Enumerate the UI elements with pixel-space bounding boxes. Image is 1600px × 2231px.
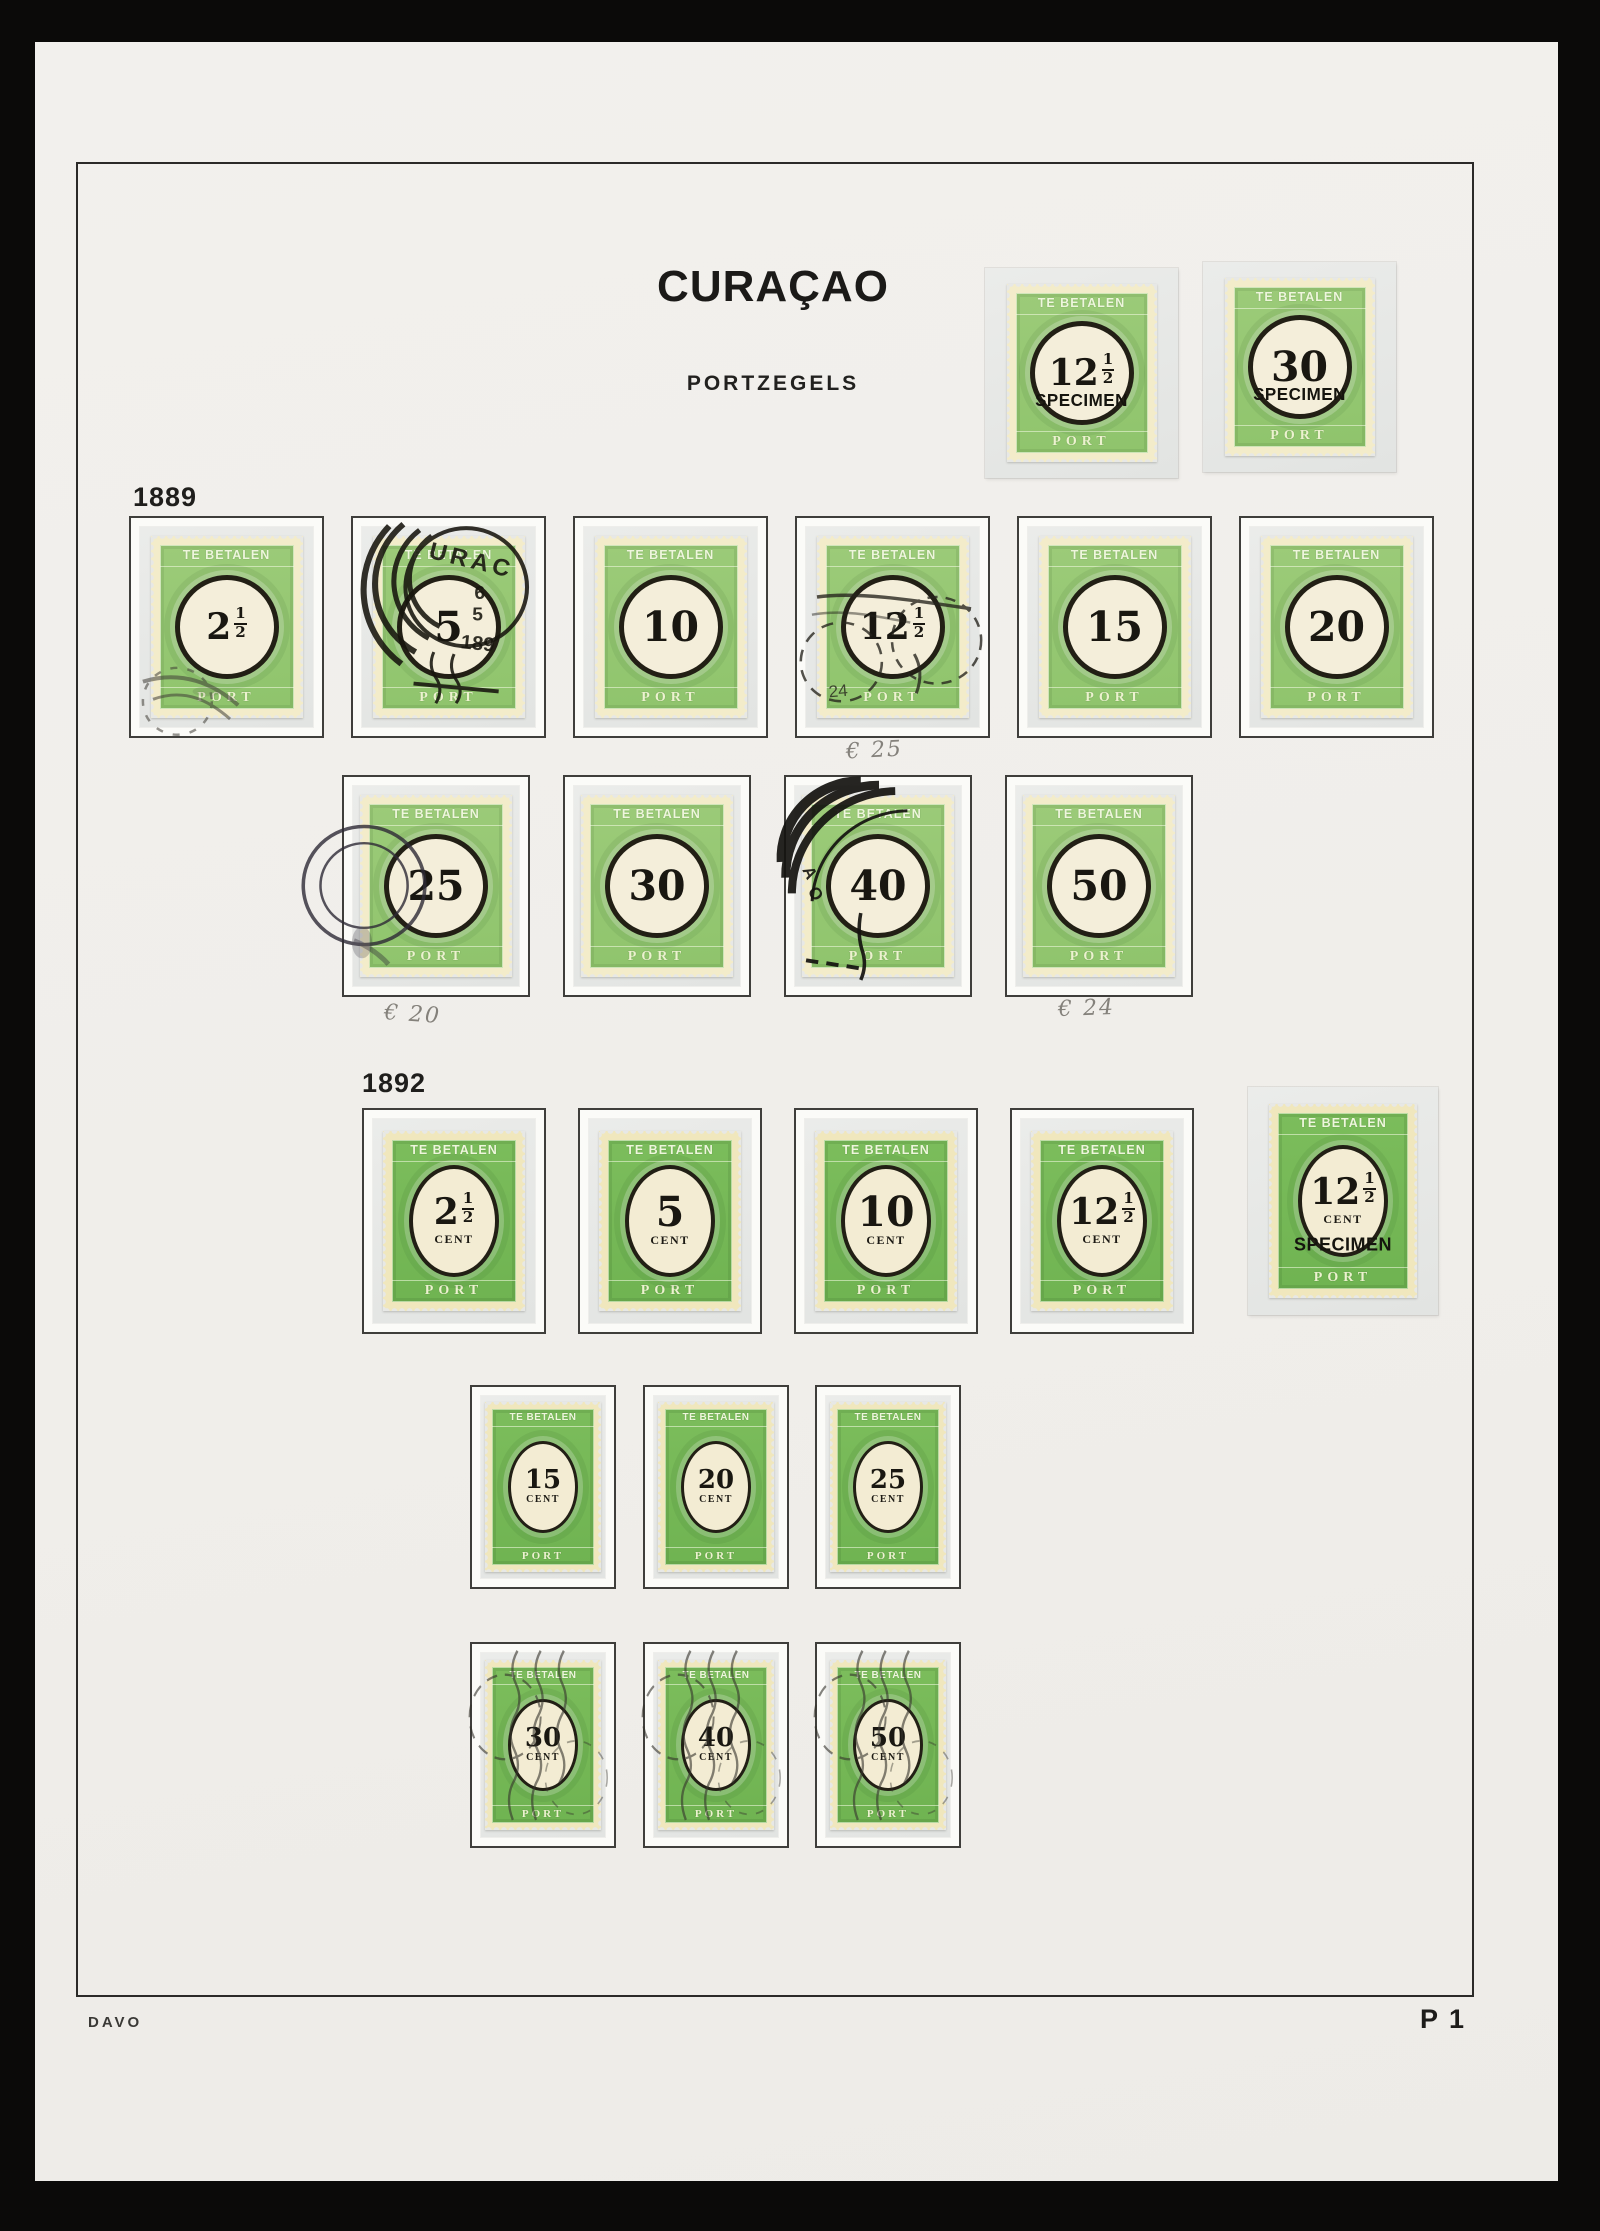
stamp-center-panel: 50CENT	[837, 1685, 939, 1805]
stamp-frame: TE BETALEN5CENTPORT	[608, 1140, 732, 1302]
stamp-30-1892: TE BETALEN30CENTPORT	[485, 1660, 601, 1830]
stamp-value: 40	[698, 1727, 734, 1750]
perforation-edge	[599, 1305, 741, 1311]
perforation-edge	[1007, 284, 1013, 462]
stamp-port-text: PORT	[492, 1805, 594, 1823]
stamp-port-text: PORT	[837, 1805, 939, 1823]
stamp-value-disc: 15CENT	[508, 1441, 578, 1533]
perforation-edge	[830, 1402, 836, 1572]
perforation-edge	[658, 1660, 664, 1830]
perforation-edge	[151, 536, 157, 718]
stamp-5-1892: TE BETALEN5CENTPORT	[599, 1131, 741, 1311]
stamp-top-text: TE BETALEN	[826, 545, 960, 567]
perforation-edge	[830, 1660, 836, 1830]
stamp-value-disc: 20CENT	[681, 1441, 751, 1533]
perforation-edge	[383, 1131, 389, 1311]
perforation-edge	[1269, 1104, 1417, 1110]
stamp-center-panel: 40	[811, 826, 945, 946]
perforation-edge	[581, 795, 733, 801]
stamp-25-1892: TE BETALEN25CENTPORT	[830, 1402, 946, 1572]
stamp-frame: TE BETALEN212CENTPORT	[392, 1140, 516, 1302]
pencil-price-note: € 25	[845, 737, 903, 765]
stamp-box: TE BETALEN1212PORT24	[795, 516, 990, 738]
perforation-edge	[1031, 1305, 1173, 1311]
perforation-edge	[360, 795, 366, 977]
stamp-unit-label: CENT	[699, 1752, 733, 1763]
stamp-frame: TE BETALEN50CENTPORT	[837, 1667, 939, 1823]
stamp-value-disc: 50	[1047, 834, 1151, 938]
perforation-edge	[727, 795, 733, 977]
stamp-value: 40	[849, 868, 906, 905]
stamp-unit-label: CENT	[526, 1494, 560, 1505]
stamp-frame: TE BETALEN40CENTPORT	[665, 1667, 767, 1823]
stamp-top-text: TE BETALEN	[665, 1667, 767, 1685]
perforation-edge	[817, 536, 969, 542]
perforation-edge	[815, 1305, 957, 1311]
stamp-top-text: TE BETALEN	[824, 1140, 948, 1162]
stamp-top-text: TE BETALEN	[1032, 804, 1166, 826]
perforation-edge	[1407, 536, 1413, 718]
stamp-top-text: TE BETALEN	[1016, 293, 1148, 315]
stamp-port-text: PORT	[1040, 1280, 1164, 1302]
stamp-40-1889: TE BETALEN40PORTAO	[802, 795, 954, 977]
perforation-edge	[830, 1566, 946, 1572]
stamp-15-1889: TE BETALEN15PORT	[1039, 536, 1191, 718]
perforation-edge	[485, 1566, 601, 1572]
stamp-value: 30	[1271, 349, 1328, 386]
pencil-price-note: € 20	[383, 1000, 442, 1029]
stamp-10-1889: TE BETALEN10PORT	[595, 536, 747, 718]
perforation-edge	[830, 1402, 946, 1408]
stamp-frame: TE BETALEN212PORT	[160, 545, 294, 709]
stamp-value-disc: 25CENT	[853, 1441, 923, 1533]
perforation-edge	[1261, 712, 1413, 718]
stamp-value-disc: 20	[1285, 575, 1389, 679]
stamp-value-disc: 1212CENT	[1057, 1165, 1147, 1277]
stamp-value: 5	[656, 1194, 685, 1231]
stamp-value-disc: 1212	[841, 575, 945, 679]
perforation-edge	[506, 795, 512, 977]
stamp-value-disc: 212CENT	[409, 1165, 499, 1277]
stamp-top-text: TE BETALEN	[604, 545, 738, 567]
stamp-center-panel: 15	[1048, 567, 1182, 687]
stamp-box: TE BETALEN5CENTPORT	[578, 1108, 762, 1334]
stamp-port-text: PORT	[1016, 431, 1148, 453]
perforation-edge	[1185, 536, 1191, 718]
stamp-port-text: PORT	[590, 946, 724, 968]
stamp-top-text: TE BETALEN	[590, 804, 724, 826]
stamp-frame: TE BETALEN1212CENTPORT	[1040, 1140, 1164, 1302]
perforation-edge	[519, 1131, 525, 1311]
stamp-top-text: TE BETALEN	[837, 1667, 939, 1685]
stamp-center-panel: 40CENT	[665, 1685, 767, 1805]
perforation-edge	[1007, 284, 1157, 290]
stamp-center-panel: 1212CENT	[1040, 1162, 1164, 1280]
stamp-top-text: TE BETALEN	[1278, 1113, 1408, 1135]
stamp-port-text: PORT	[1032, 946, 1166, 968]
stamp-box: TE BETALEN15CENTPORT	[470, 1385, 616, 1589]
perforation-edge	[951, 1131, 957, 1311]
stamp-frame: TE BETALEN40PORT	[811, 804, 945, 968]
stamp-50-1892: TE BETALEN50CENTPORT	[830, 1660, 946, 1830]
perforation-edge	[1225, 278, 1375, 284]
stamp-center-panel: 212CENT	[392, 1162, 516, 1280]
perforation-edge	[581, 795, 587, 977]
perforation-edge	[595, 1660, 601, 1830]
stamp-top-text: TE BETALEN	[369, 804, 503, 826]
perforation-edge	[1007, 456, 1157, 462]
stamp-12-half-1889: TE BETALEN1212PORT24	[817, 536, 969, 718]
perforation-edge	[485, 1660, 601, 1666]
stamp-10-1892: TE BETALEN10CENTPORT	[815, 1131, 957, 1311]
perforation-edge	[151, 712, 303, 718]
perforation-edge	[940, 1660, 946, 1830]
stamp-center-panel: 212	[160, 567, 294, 687]
perforation-edge	[830, 1660, 946, 1666]
stamp-value-disc: 30CENT	[508, 1699, 578, 1791]
perforation-edge	[1039, 536, 1045, 718]
perforation-edge	[817, 712, 969, 718]
stamp-30-specimen-1889: TE BETALEN30PORTSPECIMEN	[1225, 278, 1375, 456]
stamp-unit-label: CENT	[1082, 1232, 1121, 1247]
stamp-box: TE BETALEN10PORT	[573, 516, 768, 738]
stamp-value: 30	[628, 868, 685, 905]
perforation-edge	[373, 712, 525, 718]
perforation-edge	[373, 536, 379, 718]
stamp-top-text: TE BETALEN	[608, 1140, 732, 1162]
stamp-center-panel: 1212	[1016, 315, 1148, 431]
perforation-edge	[658, 1402, 664, 1572]
stamp-frame: TE BETALEN15PORT	[1048, 545, 1182, 709]
perforation-edge	[1225, 278, 1231, 456]
stamp-value: 5	[434, 609, 463, 646]
perforation-edge	[658, 1660, 774, 1666]
stamp-box: TE BETALEN40PORTAO	[784, 775, 972, 997]
perforation-edge	[1269, 1292, 1417, 1298]
stamp-unit-label: CENT	[866, 1233, 905, 1248]
stamp-center-panel: 30	[1234, 309, 1366, 425]
stamp-port-text: PORT	[1270, 687, 1404, 709]
stamp-20-1892: TE BETALEN20CENTPORT	[658, 1402, 774, 1572]
perforation-edge	[595, 1402, 601, 1572]
perforation-edge	[1369, 278, 1375, 456]
stamp-value-disc: 30	[605, 834, 709, 938]
stamp-value-disc: 5	[397, 575, 501, 679]
stamp-frame: TE BETALEN10CENTPORT	[824, 1140, 948, 1302]
stamp-value: 212	[206, 610, 247, 643]
perforation-edge	[485, 1824, 601, 1830]
stamp-20-1889: TE BETALEN20PORT	[1261, 536, 1413, 718]
stamp-value: 20	[1308, 609, 1365, 646]
stamp-port-text: PORT	[837, 1547, 939, 1565]
stamp-box: TE BETALEN1212CENTPORT	[1010, 1108, 1194, 1334]
stamp-value: 50	[1070, 868, 1127, 905]
stamp-value-disc: 40CENT	[681, 1699, 751, 1791]
perforation-edge	[817, 536, 823, 718]
stamp-port-text: PORT	[665, 1547, 767, 1565]
stamp-center-panel: 25CENT	[837, 1427, 939, 1547]
year-label-1889: 1889	[133, 482, 197, 513]
stamp-frame: TE BETALEN30PORT	[1234, 287, 1366, 447]
stamp-top-text: TE BETALEN	[1048, 545, 1182, 567]
stamp-center-panel: 30CENT	[492, 1685, 594, 1805]
stamp-box: TE BETALEN25PORT	[342, 775, 530, 997]
stamp-center-panel: 5	[382, 567, 516, 687]
stamp-box: TE BETALEN10CENTPORT	[794, 1108, 978, 1334]
perforation-edge	[658, 1824, 774, 1830]
stamp-value-disc: 15	[1063, 575, 1167, 679]
perforation-edge	[360, 971, 512, 977]
stamp-value: 25	[407, 868, 464, 905]
stamp-unit-label: CENT	[1323, 1212, 1362, 1227]
stamp-40-1892: TE BETALEN40CENTPORT	[658, 1660, 774, 1830]
perforation-edge	[830, 1824, 946, 1830]
stamp-port-text: PORT	[1048, 687, 1182, 709]
pencil-price-note: € 24	[1058, 995, 1116, 1022]
stamp-box: TE BETALEN212PORT	[129, 516, 324, 738]
specimen-overprint: SPECIMEN	[1221, 384, 1379, 405]
stamp-value: 50	[870, 1727, 906, 1750]
stamp-top-text: TE BETALEN	[1270, 545, 1404, 567]
perforation-edge	[599, 1131, 605, 1311]
perforation-edge	[1031, 1131, 1037, 1311]
stamp-2-half-1889: TE BETALEN212PORT	[151, 536, 303, 718]
perforation-edge	[815, 1131, 957, 1137]
stamp-box: TE BETALEN212CENTPORT	[362, 1108, 546, 1334]
stamp-value-disc: 5CENT	[625, 1165, 715, 1277]
stamp-12-half-specimen-1892: TE BETALEN1212CENTPORTSPECIMEN	[1269, 1104, 1417, 1298]
stamp-unit-label: CENT	[650, 1233, 689, 1248]
stamp-value: 1212	[1310, 1175, 1376, 1208]
stamp-30-1889: TE BETALEN30PORT	[581, 795, 733, 977]
perforation-edge	[595, 536, 747, 542]
stamp-port-text: PORT	[369, 946, 503, 968]
perforation-edge	[741, 536, 747, 718]
stamp-top-text: TE BETALEN	[492, 1667, 594, 1685]
stamp-frame: TE BETALEN50PORT	[1032, 804, 1166, 968]
stamp-port-text: PORT	[811, 946, 945, 968]
perforation-edge	[1225, 450, 1375, 456]
stamp-5-1889: TE BETALEN5PORTURAC65189	[373, 536, 525, 718]
stamp-unit-label: CENT	[526, 1752, 560, 1763]
stamp-box: TE BETALEN50CENTPORT	[815, 1642, 961, 1848]
photo-backdrop: CURAÇAO PORTZEGELS DAVO P 1 TE BETALEN12…	[0, 0, 1600, 2231]
stamp-top-text: TE BETALEN	[811, 804, 945, 826]
perforation-edge	[581, 971, 733, 977]
stamp-port-text: PORT	[604, 687, 738, 709]
stamp-box: TE BETALEN30CENTPORT	[470, 1642, 616, 1848]
stamp-box: TE BETALEN20CENTPORT	[643, 1385, 789, 1589]
stamp-frame: TE BETALEN30CENTPORT	[492, 1667, 594, 1823]
stamp-value-disc: 10CENT	[841, 1165, 931, 1277]
stamp-port-text: PORT	[608, 1280, 732, 1302]
stamp-12-half-specimen-1889: TE BETALEN1212PORTSPECIMEN	[1007, 284, 1157, 462]
stamp-port-text: PORT	[160, 687, 294, 709]
stamp-frame: TE BETALEN1212CENTPORT	[1278, 1113, 1408, 1289]
stamp-value: 1212	[1069, 1195, 1135, 1228]
stamp-frame: TE BETALEN20CENTPORT	[665, 1409, 767, 1565]
perforation-edge	[383, 1131, 525, 1137]
stamp-value: 1212	[1049, 356, 1115, 389]
specimen-mount: TE BETALEN1212PORTSPECIMEN	[985, 268, 1178, 478]
stamp-value-disc: 10	[619, 575, 723, 679]
stamp-2-half-1892: TE BETALEN212CENTPORT	[383, 1131, 525, 1311]
perforation-edge	[1031, 1131, 1173, 1137]
stamp-top-text: TE BETALEN	[382, 545, 516, 567]
stamp-frame: TE BETALEN25PORT	[369, 804, 503, 968]
stamp-top-text: TE BETALEN	[1234, 287, 1366, 309]
perforation-edge	[519, 536, 525, 718]
perforation-edge	[1039, 712, 1191, 718]
perforation-edge	[940, 1402, 946, 1572]
stamp-frame: TE BETALEN5PORT	[382, 545, 516, 709]
perforation-edge	[1151, 284, 1157, 462]
stamp-unit-label: CENT	[871, 1494, 905, 1505]
stamp-value-disc: 25	[384, 834, 488, 938]
perforation-edge	[802, 795, 954, 801]
stamp-50-1889: TE BETALEN50PORT	[1023, 795, 1175, 977]
stamp-12-half-1892: TE BETALEN1212CENTPORT	[1031, 1131, 1173, 1311]
specimen-overprint: SPECIMEN	[1003, 390, 1161, 411]
perforation-edge	[1023, 795, 1029, 977]
stamp-frame: TE BETALEN20PORT	[1270, 545, 1404, 709]
perforation-edge	[1261, 536, 1413, 542]
stamp-value-disc: 212	[175, 575, 279, 679]
perforation-edge	[1167, 1131, 1173, 1311]
perforation-edge	[802, 971, 954, 977]
stamp-center-panel: 10CENT	[824, 1162, 948, 1280]
stamp-value-disc: 40	[826, 834, 930, 938]
perforation-edge	[297, 536, 303, 718]
stamp-top-text: TE BETALEN	[1040, 1140, 1164, 1162]
perforation-edge	[658, 1402, 774, 1408]
perforation-edge	[1023, 795, 1175, 801]
stamp-frame: TE BETALEN30PORT	[590, 804, 724, 968]
stamp-center-panel: 50	[1032, 826, 1166, 946]
stamp-box: TE BETALEN20PORT	[1239, 516, 1434, 738]
stamp-port-text: PORT	[492, 1547, 594, 1565]
stamp-value: 15	[525, 1469, 561, 1492]
stamp-value: 30	[525, 1727, 561, 1750]
stamp-center-panel: 1212	[826, 567, 960, 687]
stamp-value: 10	[857, 1194, 914, 1231]
stamp-frame: TE BETALEN1212PORT	[826, 545, 960, 709]
perforation-edge	[1039, 536, 1191, 542]
stamp-port-text: PORT	[824, 1280, 948, 1302]
stamp-value: 10	[642, 609, 699, 646]
stamp-center-panel: 20CENT	[665, 1427, 767, 1547]
stamp-box: TE BETALEN25CENTPORT	[815, 1385, 961, 1589]
publisher-mark: DAVO	[88, 2014, 142, 2031]
stamp-box: TE BETALEN40CENTPORT	[643, 1642, 789, 1848]
stamp-frame: TE BETALEN25CENTPORT	[837, 1409, 939, 1565]
stamp-port-text: PORT	[1234, 425, 1366, 447]
stamp-center-panel: 15CENT	[492, 1427, 594, 1547]
specimen-mount: TE BETALEN30PORTSPECIMEN	[1203, 262, 1396, 472]
perforation-edge	[485, 1402, 601, 1408]
stamp-frame: TE BETALEN15CENTPORT	[492, 1409, 594, 1565]
album-page: CURAÇAO PORTZEGELS DAVO P 1 TE BETALEN12…	[35, 42, 1558, 2181]
stamp-top-text: TE BETALEN	[492, 1409, 594, 1427]
stamp-frame: TE BETALEN1212PORT	[1016, 293, 1148, 453]
perforation-edge	[1269, 1104, 1275, 1298]
perforation-edge	[595, 712, 747, 718]
perforation-edge	[948, 795, 954, 977]
perforation-edge	[151, 536, 303, 542]
perforation-edge	[1023, 971, 1175, 977]
stamp-top-text: TE BETALEN	[160, 545, 294, 567]
perforation-edge	[373, 536, 525, 542]
stamp-port-text: PORT	[392, 1280, 516, 1302]
stamp-top-text: TE BETALEN	[837, 1409, 939, 1427]
stamp-center-panel: 5CENT	[608, 1162, 732, 1280]
stamp-frame: TE BETALEN10PORT	[604, 545, 738, 709]
stamp-port-text: PORT	[1278, 1267, 1408, 1289]
year-label-1892: 1892	[362, 1068, 426, 1099]
stamp-15-1892: TE BETALEN15CENTPORT	[485, 1402, 601, 1572]
perforation-edge	[802, 795, 808, 977]
stamp-value-disc: 50CENT	[853, 1699, 923, 1791]
perforation-edge	[485, 1660, 491, 1830]
perforation-edge	[768, 1402, 774, 1572]
stamp-value: 20	[698, 1469, 734, 1492]
perforation-edge	[383, 1305, 525, 1311]
stamp-center-panel: 25	[369, 826, 503, 946]
stamp-value: 15	[1086, 609, 1143, 646]
stamp-box: TE BETALEN30PORT	[563, 775, 751, 997]
perforation-edge	[963, 536, 969, 718]
perforation-edge	[485, 1402, 491, 1572]
stamp-unit-label: CENT	[699, 1494, 733, 1505]
stamp-unit-label: CENT	[434, 1232, 473, 1247]
stamp-top-text: TE BETALEN	[392, 1140, 516, 1162]
stamp-box: TE BETALEN15PORT	[1017, 516, 1212, 738]
stamp-port-text: PORT	[665, 1805, 767, 1823]
stamp-box: TE BETALEN5PORTURAC65189	[351, 516, 546, 738]
stamp-value: 25	[870, 1469, 906, 1492]
perforation-edge	[768, 1660, 774, 1830]
stamp-port-text: PORT	[826, 687, 960, 709]
stamp-value: 1212	[860, 610, 926, 643]
stamp-center-panel: 10	[604, 567, 738, 687]
perforation-edge	[595, 536, 601, 718]
specimen-mount: TE BETALEN1212CENTPORTSPECIMEN	[1248, 1087, 1438, 1315]
stamp-port-text: PORT	[382, 687, 516, 709]
perforation-edge	[658, 1566, 774, 1572]
perforation-edge	[815, 1131, 821, 1311]
stamp-25-1889: TE BETALEN25PORT	[360, 795, 512, 977]
perforation-edge	[1169, 795, 1175, 977]
page-number: P 1	[1420, 2004, 1466, 2035]
stamp-box: TE BETALEN50PORT	[1005, 775, 1193, 997]
perforation-edge	[735, 1131, 741, 1311]
perforation-edge	[599, 1131, 741, 1137]
perforation-edge	[1261, 536, 1267, 718]
stamp-center-panel: 30	[590, 826, 724, 946]
perforation-edge	[1411, 1104, 1417, 1298]
perforation-edge	[360, 795, 512, 801]
stamp-top-text: TE BETALEN	[665, 1409, 767, 1427]
specimen-overprint: SPECIMEN	[1265, 1233, 1421, 1255]
stamp-center-panel: 20	[1270, 567, 1404, 687]
stamp-value: 212	[434, 1195, 475, 1228]
stamp-unit-label: CENT	[871, 1752, 905, 1763]
